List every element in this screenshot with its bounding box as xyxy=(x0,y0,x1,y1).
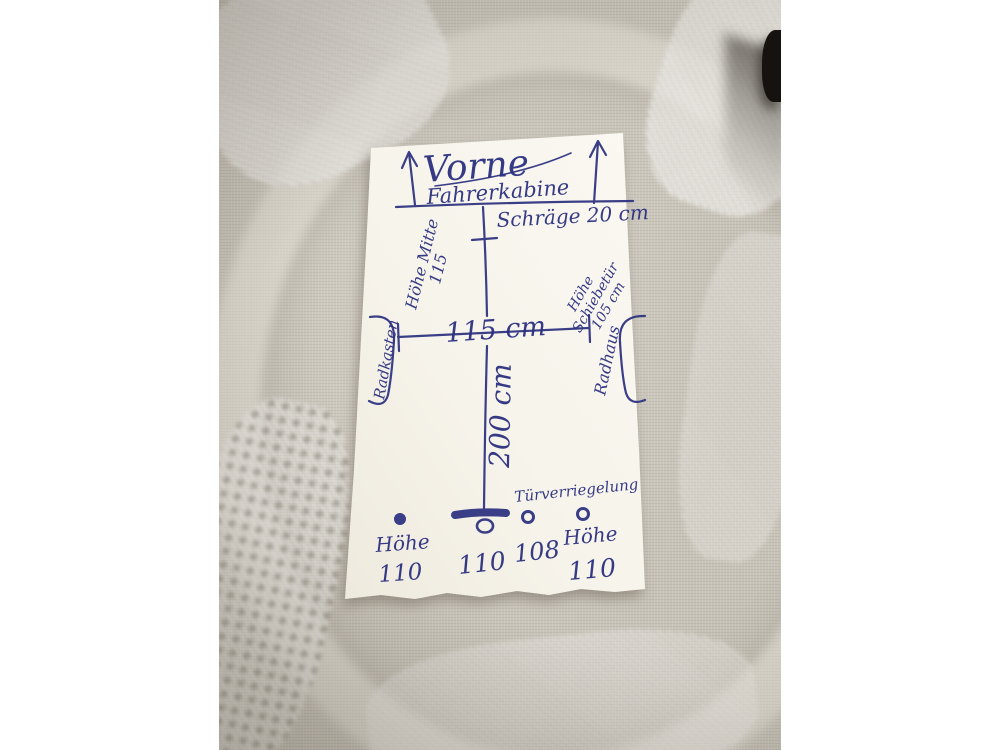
bottom-marker-4-label: Höhe xyxy=(561,521,618,550)
door-lock-circle-left xyxy=(395,514,405,524)
axis-end-blob xyxy=(455,512,506,515)
tablecloth-background: Vorne Fahrerkabine Schräge 20 cm Höhe Mi… xyxy=(219,0,781,750)
bottom-marker-1-label: Höhe xyxy=(374,529,431,557)
handwritten-note: Vorne Fahrerkabine Schräge 20 cm Höhe Mi… xyxy=(219,0,781,750)
laenge-200-label: 200 cm xyxy=(483,363,518,469)
bottom-marker-1-value: 110 xyxy=(378,559,424,588)
bottom-marker-4-value: 110 xyxy=(567,553,617,586)
bottom-marker-2-value: 110 xyxy=(457,546,508,580)
bottom-marker-3-value: 108 xyxy=(513,535,561,568)
